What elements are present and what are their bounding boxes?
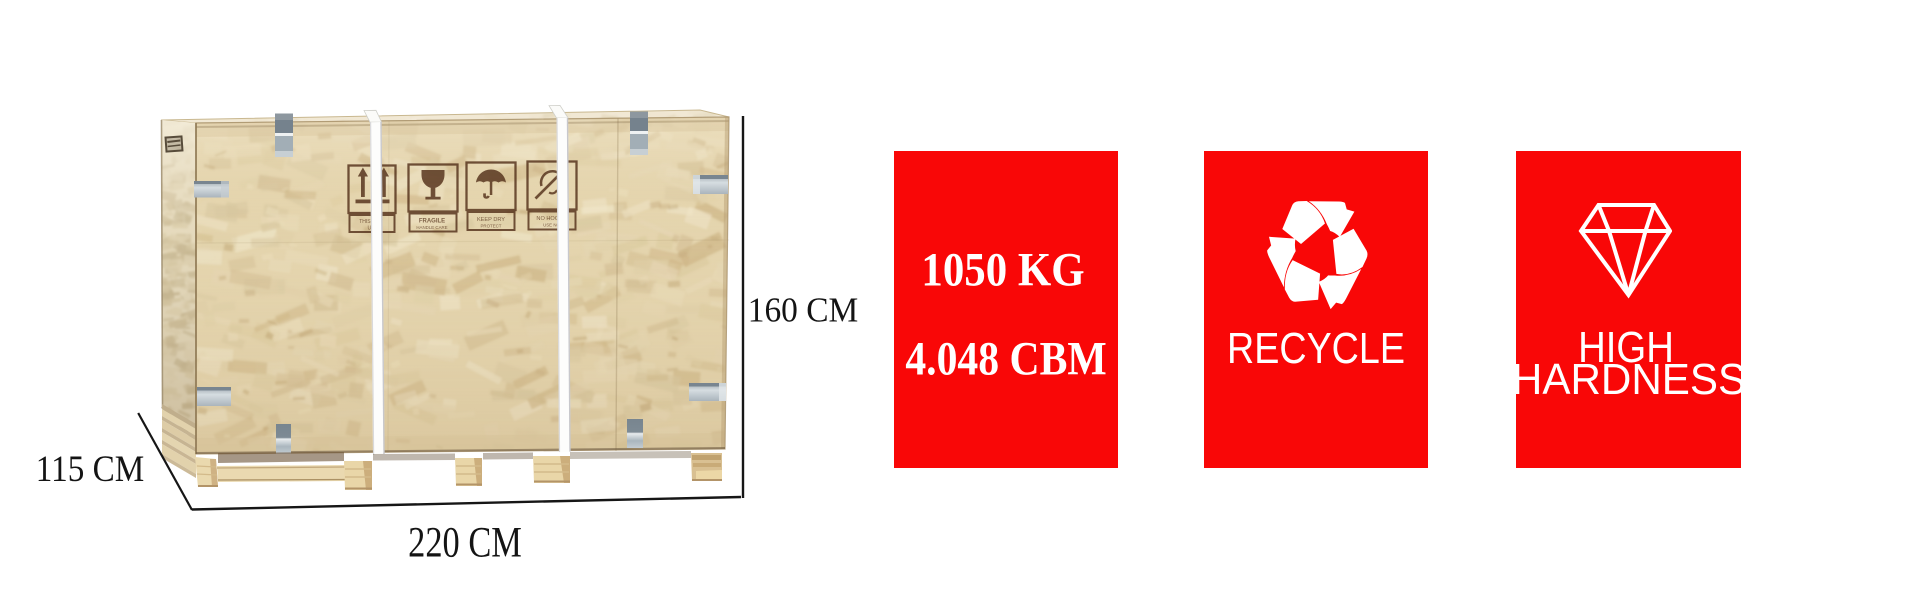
svg-text:HANDLE CARE: HANDLE CARE xyxy=(416,225,447,230)
svg-text:KEEP DRY: KEEP DRY xyxy=(477,217,505,223)
svg-text:PROTECT: PROTECT xyxy=(481,224,502,229)
svg-text:FRAGILE: FRAGILE xyxy=(419,219,445,225)
